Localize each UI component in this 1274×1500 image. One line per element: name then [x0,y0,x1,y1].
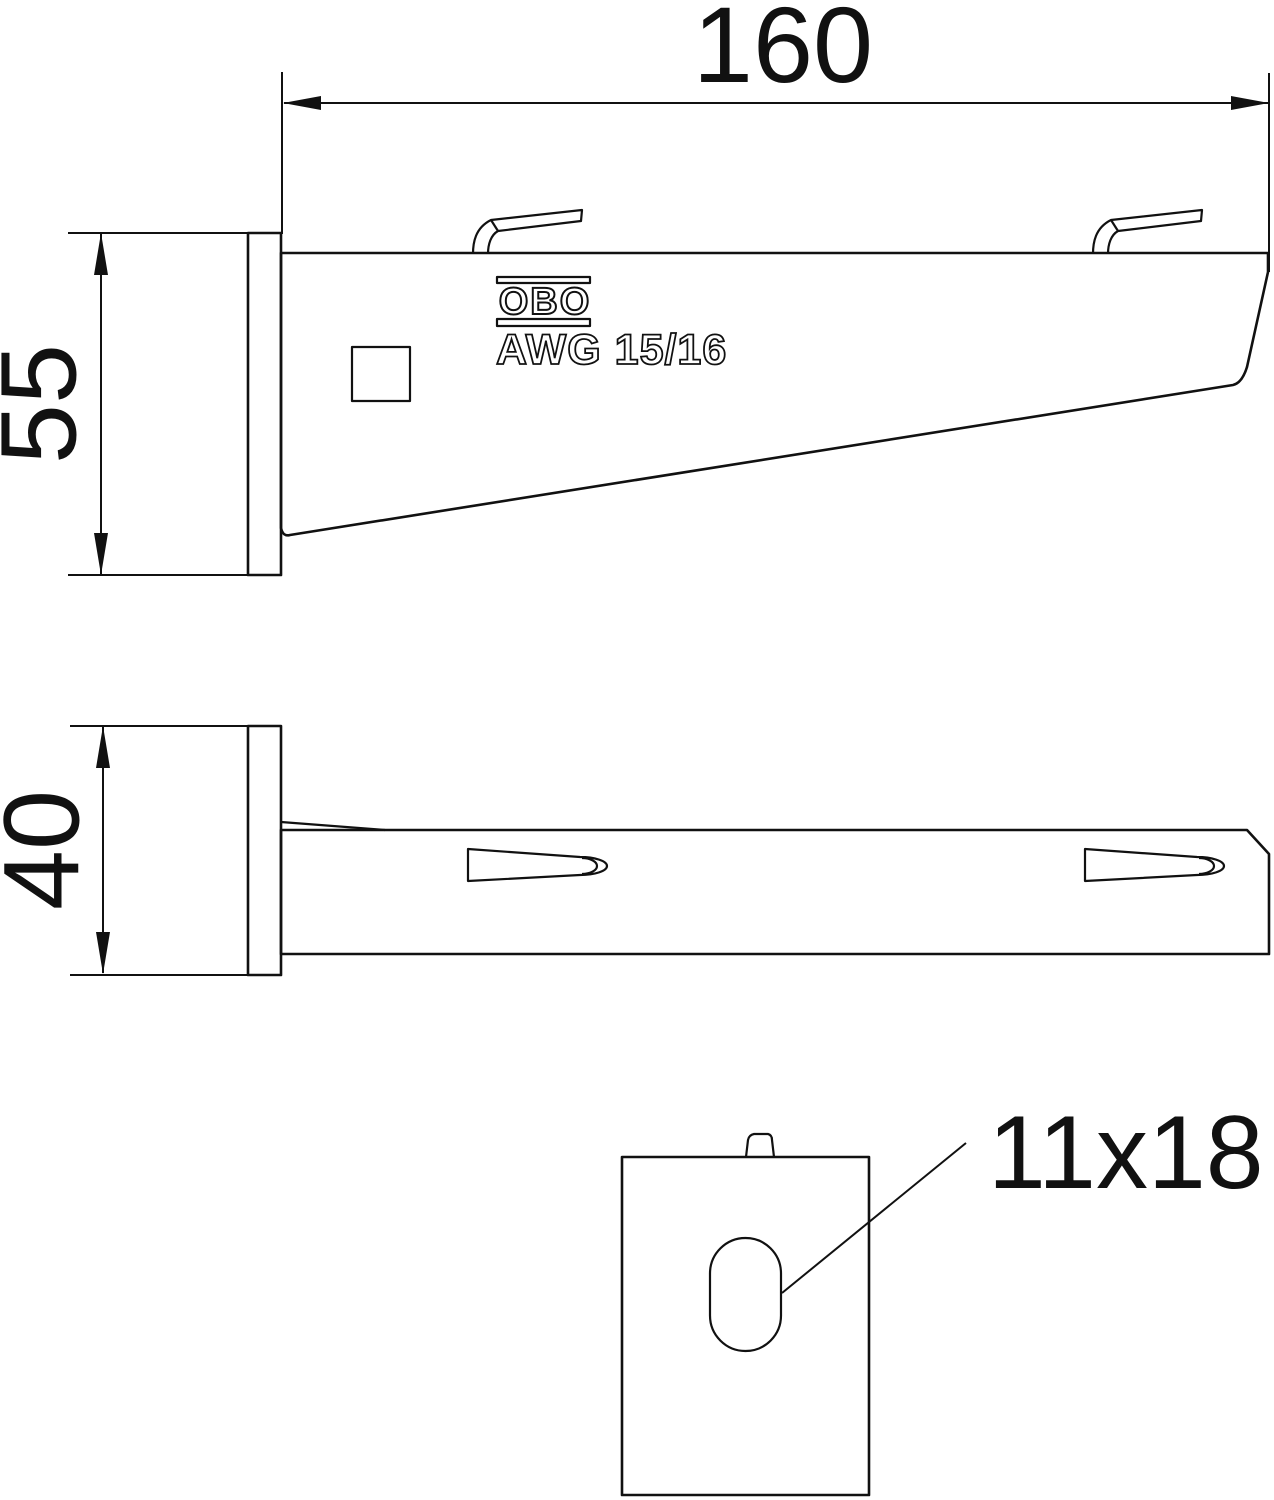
slot-outer-outline [1085,849,1224,881]
leader-line [782,1143,966,1293]
dimension-arrow-up-icon [94,233,108,275]
technical-drawing-page: 160 55 [0,0,1274,1500]
mounting-plate-front [622,1157,869,1495]
dimension-arm-length-label: 160 [693,0,873,105]
slot-size-callout: 11x18 [782,1095,1264,1293]
obo-logo-text: OBO [499,281,592,323]
hook-crease [1111,220,1118,231]
wall-plate-side [248,233,281,575]
dimension-plate-height-label: 55 [0,344,99,464]
dimension-plate-height: 55 [0,233,248,575]
hook-outline [1093,210,1202,254]
bracket-technical-drawing: 160 55 [0,0,1274,1500]
plan-view: 40 [0,726,1269,975]
bracket-arm-plan-outline [281,830,1269,954]
retaining-hook-left [473,210,582,254]
slot-size-label: 11x18 [988,1095,1264,1211]
wall-plate-plan [248,726,281,975]
dimension-arrow-down-icon [96,932,110,974]
slot-outer-outline [468,849,607,881]
dimension-arrow-up-icon [96,726,110,768]
obo-logo: OBO [497,277,591,326]
oblong-mounting-hole [710,1238,781,1351]
dimension-plate-width: 40 [0,726,248,975]
square-hole [352,347,410,401]
dimension-arrow-down-icon [94,533,108,575]
dimension-arrow-left-icon [283,96,321,110]
dimension-plate-width-label: 40 [0,790,102,910]
stamped-slot-right [1085,849,1224,881]
hook-crease [491,220,498,231]
slot-inner-arc [1199,858,1214,874]
stamped-slot-left [468,849,607,881]
detail-view: 11x18 [622,1095,1264,1495]
bracket-arm-side-outline [281,253,1268,535]
retaining-hook-right [1093,210,1202,254]
dimension-arrow-right-icon [1231,96,1269,110]
side-view: 160 55 [0,0,1269,575]
model-designation-text: AWG 15/16 [496,326,727,374]
slot-inner-arc [582,858,597,874]
hook-tab-front [746,1134,774,1157]
hook-outline [473,210,582,254]
